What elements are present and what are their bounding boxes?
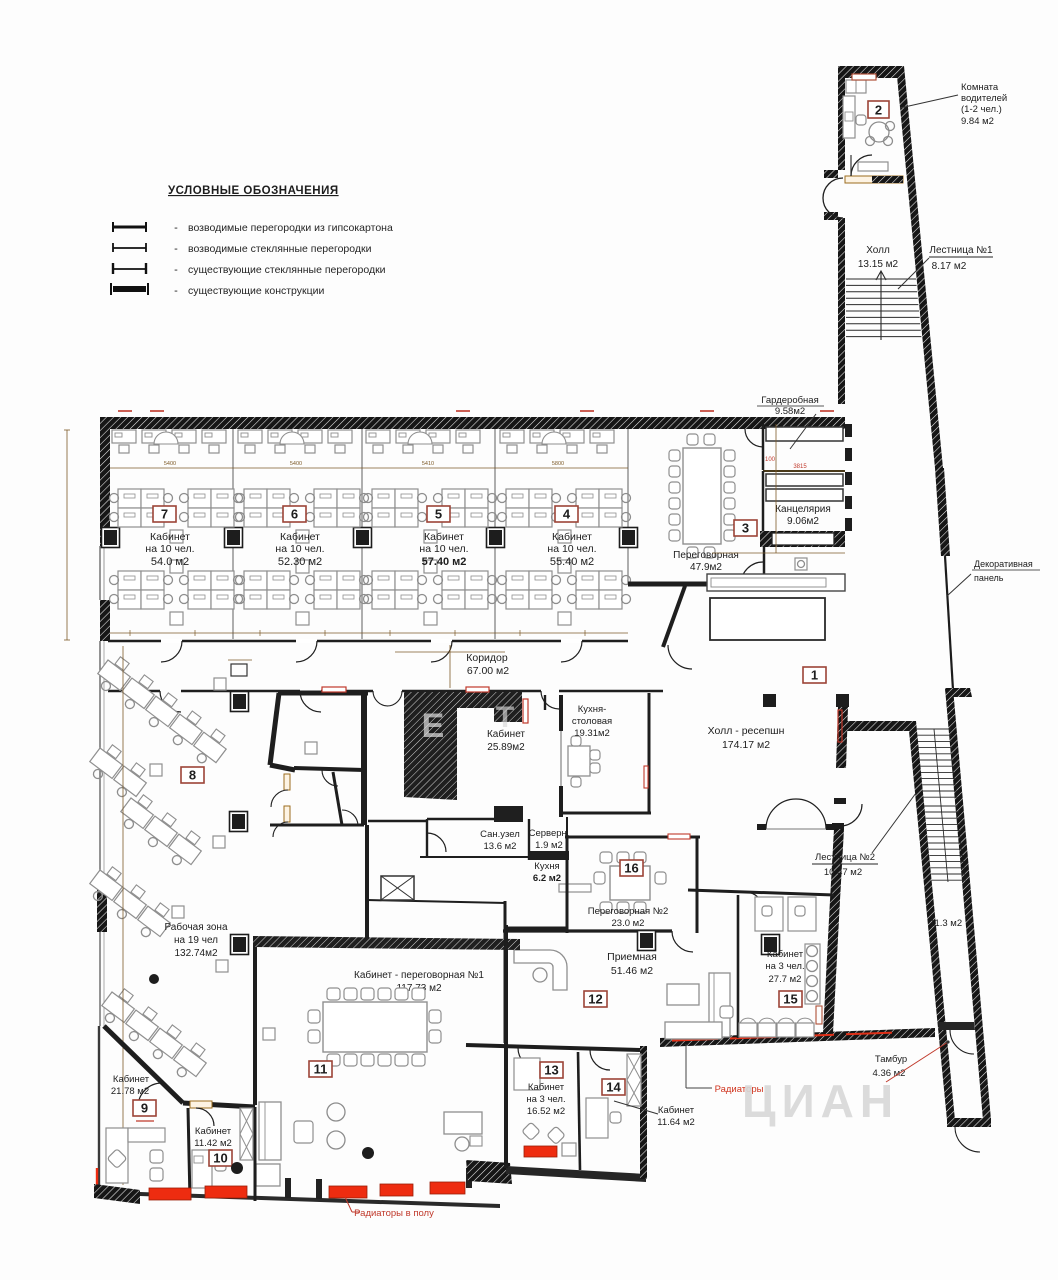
svg-text:возводимые перегородки из гипс: возводимые перегородки из гипсокартона xyxy=(188,222,393,234)
svg-text:4: 4 xyxy=(563,507,571,522)
svg-text:67.00 м2: 67.00 м2 xyxy=(467,665,509,677)
svg-text:Канцелярия: Канцелярия xyxy=(775,504,831,515)
svg-text:панель: панель xyxy=(974,573,1004,583)
svg-text:55.40 м2: 55.40 м2 xyxy=(550,556,594,568)
svg-text:Кабинет: Кабинет xyxy=(150,531,190,543)
svg-text:УСЛОВНЫЕ ОБОЗНАЧЕНИЯ: УСЛОВНЫЕ ОБОЗНАЧЕНИЯ xyxy=(168,185,339,197)
svg-text:11.42 м2: 11.42 м2 xyxy=(194,1138,232,1149)
svg-text:-: - xyxy=(174,285,178,297)
svg-text:Коридор: Коридор xyxy=(466,652,508,664)
svg-text:57.40 м2: 57.40 м2 xyxy=(422,556,467,568)
svg-text:21.78 м2: 21.78 м2 xyxy=(111,1086,149,1097)
svg-text:Кабинет: Кабинет xyxy=(767,949,804,960)
svg-text:11.64 м2: 11.64 м2 xyxy=(657,1117,695,1128)
svg-text:19.31м2: 19.31м2 xyxy=(574,728,610,739)
svg-text:на 10 чел.: на 10 чел. xyxy=(145,543,194,555)
svg-text:1.9 м2: 1.9 м2 xyxy=(535,840,563,851)
svg-text:Холл - ресепшн: Холл - ресепшн xyxy=(708,725,785,737)
svg-text:Кабинет: Кабинет xyxy=(424,531,464,543)
svg-text:13.15 м2: 13.15 м2 xyxy=(858,259,899,270)
svg-text:Кабинет: Кабинет xyxy=(113,1074,150,1085)
svg-text:174.17 м2: 174.17 м2 xyxy=(722,739,770,751)
svg-text:-: - xyxy=(174,264,178,276)
svg-text:2: 2 xyxy=(875,103,882,118)
svg-text:25.89м2: 25.89м2 xyxy=(487,742,525,753)
svg-text:Кабинет - переговорная №1: Кабинет - переговорная №1 xyxy=(354,969,484,981)
svg-text:52.30 м2: 52.30 м2 xyxy=(278,556,322,568)
svg-text:столовая: столовая xyxy=(572,716,612,727)
svg-text:Переговорная: Переговорная xyxy=(673,550,739,561)
svg-text:10: 10 xyxy=(213,1151,227,1166)
svg-text:13.6 м2: 13.6 м2 xyxy=(484,841,517,852)
svg-text:14: 14 xyxy=(606,1080,621,1095)
svg-text:на 10 чел.: на 10 чел. xyxy=(419,543,468,555)
svg-text:(1-2 чел.): (1-2 чел.) xyxy=(961,104,1002,115)
svg-text:6: 6 xyxy=(291,507,298,522)
svg-text:Кабинет: Кабинет xyxy=(528,1082,565,1093)
svg-text:Серверн.: Серверн. xyxy=(529,828,570,839)
svg-text:Т: Т xyxy=(496,701,514,734)
svg-text:водителей: водителей xyxy=(961,93,1007,104)
svg-text:на 3 чел.: на 3 чел. xyxy=(765,961,804,972)
svg-text:Радиаторы в полу: Радиаторы в полу xyxy=(354,1208,434,1219)
svg-text:Сан.узел: Сан.узел xyxy=(480,829,520,840)
svg-text:1: 1 xyxy=(811,668,818,683)
svg-text:Кухня: Кухня xyxy=(534,861,559,872)
svg-text:11: 11 xyxy=(314,1062,328,1077)
svg-text:существующие конструкции: существующие конструкции xyxy=(188,285,325,297)
svg-text:3: 3 xyxy=(742,521,749,536)
svg-text:10.47 м2: 10.47 м2 xyxy=(824,867,862,878)
svg-text:5400: 5400 xyxy=(290,461,302,467)
svg-text:47.9м2: 47.9м2 xyxy=(690,562,722,573)
svg-text:16: 16 xyxy=(624,861,638,876)
svg-text:Гардеробная: Гардеробная xyxy=(761,395,818,406)
svg-text:9.58м2: 9.58м2 xyxy=(775,406,805,417)
svg-text:Кабинет: Кабинет xyxy=(195,1126,232,1137)
svg-text:12: 12 xyxy=(588,992,602,1007)
svg-text:Кухня-: Кухня- xyxy=(578,704,607,715)
svg-text:11.3 м2: 11.3 м2 xyxy=(930,918,962,929)
svg-text:54.0 м2: 54.0 м2 xyxy=(151,556,189,568)
svg-text:Кабинет: Кабинет xyxy=(552,531,592,543)
svg-text:6.2 м2: 6.2 м2 xyxy=(533,873,561,884)
svg-text:9.06м2: 9.06м2 xyxy=(787,516,819,527)
svg-text:Лестница №1: Лестница №1 xyxy=(929,245,993,256)
svg-text:7: 7 xyxy=(161,507,168,522)
svg-text:5400: 5400 xyxy=(164,461,176,467)
svg-text:Е: Е xyxy=(422,707,445,745)
svg-text:13: 13 xyxy=(544,1063,558,1078)
svg-text:Декоративная: Декоративная xyxy=(974,559,1033,569)
svg-text:возводимые стеклянные перегоро: возводимые стеклянные перегородки xyxy=(188,243,372,255)
svg-text:на 10 чел.: на 10 чел. xyxy=(547,543,596,555)
svg-text:5: 5 xyxy=(435,507,442,522)
svg-text:Переговорная №2: Переговорная №2 xyxy=(588,906,669,917)
svg-text:3815: 3815 xyxy=(793,464,807,470)
svg-text:Тамбур: Тамбур xyxy=(875,1054,907,1065)
svg-text:51.46 м2: 51.46 м2 xyxy=(611,965,653,977)
svg-text:-: - xyxy=(174,243,178,255)
svg-text:на 3 чел.: на 3 чел. xyxy=(526,1094,565,1105)
svg-text:Комната: Комната xyxy=(961,82,999,93)
svg-text:8.17 м2: 8.17 м2 xyxy=(932,261,967,272)
svg-text:Холл: Холл xyxy=(866,245,890,256)
svg-text:-: - xyxy=(174,222,178,234)
svg-text:132.74м2: 132.74м2 xyxy=(174,948,217,959)
svg-text:5410: 5410 xyxy=(422,461,434,467)
svg-text:на 10 чел.: на 10 чел. xyxy=(275,543,324,555)
svg-text:15: 15 xyxy=(783,992,797,1007)
svg-text:100: 100 xyxy=(765,457,776,463)
svg-text:существующие стеклянные перего: существующие стеклянные перегородки xyxy=(188,264,386,276)
svg-text:Рабочая зона: Рабочая зона xyxy=(164,921,227,933)
svg-text:27.7 м2: 27.7 м2 xyxy=(769,974,802,985)
svg-text:9.84 м2: 9.84 м2 xyxy=(961,116,994,127)
svg-text:8: 8 xyxy=(189,768,196,783)
svg-text:9: 9 xyxy=(141,1101,148,1116)
svg-text:ЦИАН: ЦИАН xyxy=(742,1075,899,1127)
svg-text:Приемная: Приемная xyxy=(607,951,657,963)
svg-text:5800: 5800 xyxy=(552,461,564,467)
svg-text:16.52 м2: 16.52 м2 xyxy=(527,1106,565,1117)
svg-text:Кабинет: Кабинет xyxy=(280,531,320,543)
svg-text:на 19 чел: на 19 чел xyxy=(174,935,218,946)
svg-text:23.0 м2: 23.0 м2 xyxy=(612,918,645,929)
svg-text:Лестница №2: Лестница №2 xyxy=(815,852,875,863)
svg-text:Кабинет: Кабинет xyxy=(658,1105,695,1116)
